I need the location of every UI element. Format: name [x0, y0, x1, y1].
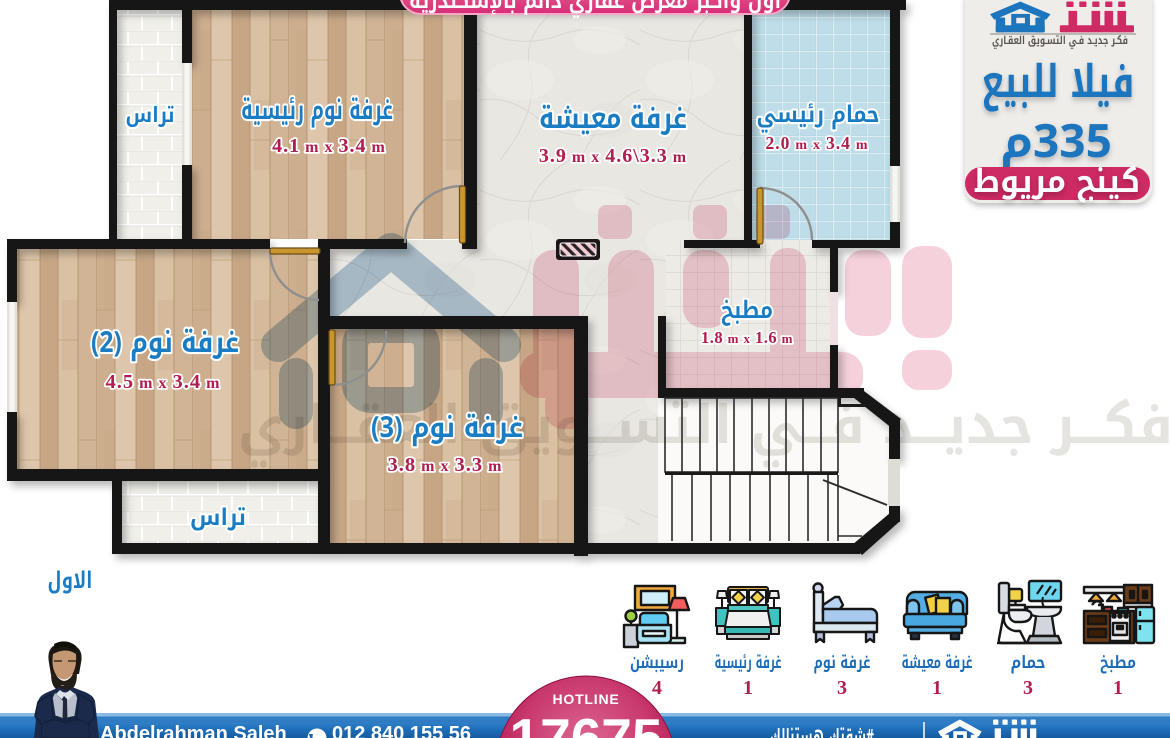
svg-text:1: 1 — [1113, 677, 1123, 699]
svg-text:012 840 155 56: 012 840 155 56 — [332, 723, 471, 738]
svg-text:3: 3 — [837, 677, 847, 699]
svg-text:1: 1 — [743, 677, 753, 699]
svg-text:Abdelrahman Saleh: Abdelrahman Saleh — [100, 723, 287, 738]
svg-text:3.8 m x 3.3 m: 3.8 m x 3.3 m — [388, 454, 503, 476]
svg-text:1.8 m x 1.6 m: 1.8 m x 1.6 m — [701, 328, 793, 347]
svg-text:1: 1 — [932, 677, 942, 699]
svg-text:3.9 m x 4.6\3.3 m: 3.9 m x 4.6\3.3 m — [539, 145, 687, 167]
svg-text:17675: 17675 — [510, 707, 663, 738]
svg-text:HOTLINE: HOTLINE — [552, 691, 619, 707]
svg-text:4.1 m x 3.4 m: 4.1 m x 3.4 m — [272, 135, 386, 157]
svg-text:3: 3 — [1023, 677, 1033, 699]
svg-text:4.5 m x 3.4 m: 4.5 m x 3.4 m — [106, 371, 221, 393]
svg-text:4: 4 — [652, 677, 662, 699]
